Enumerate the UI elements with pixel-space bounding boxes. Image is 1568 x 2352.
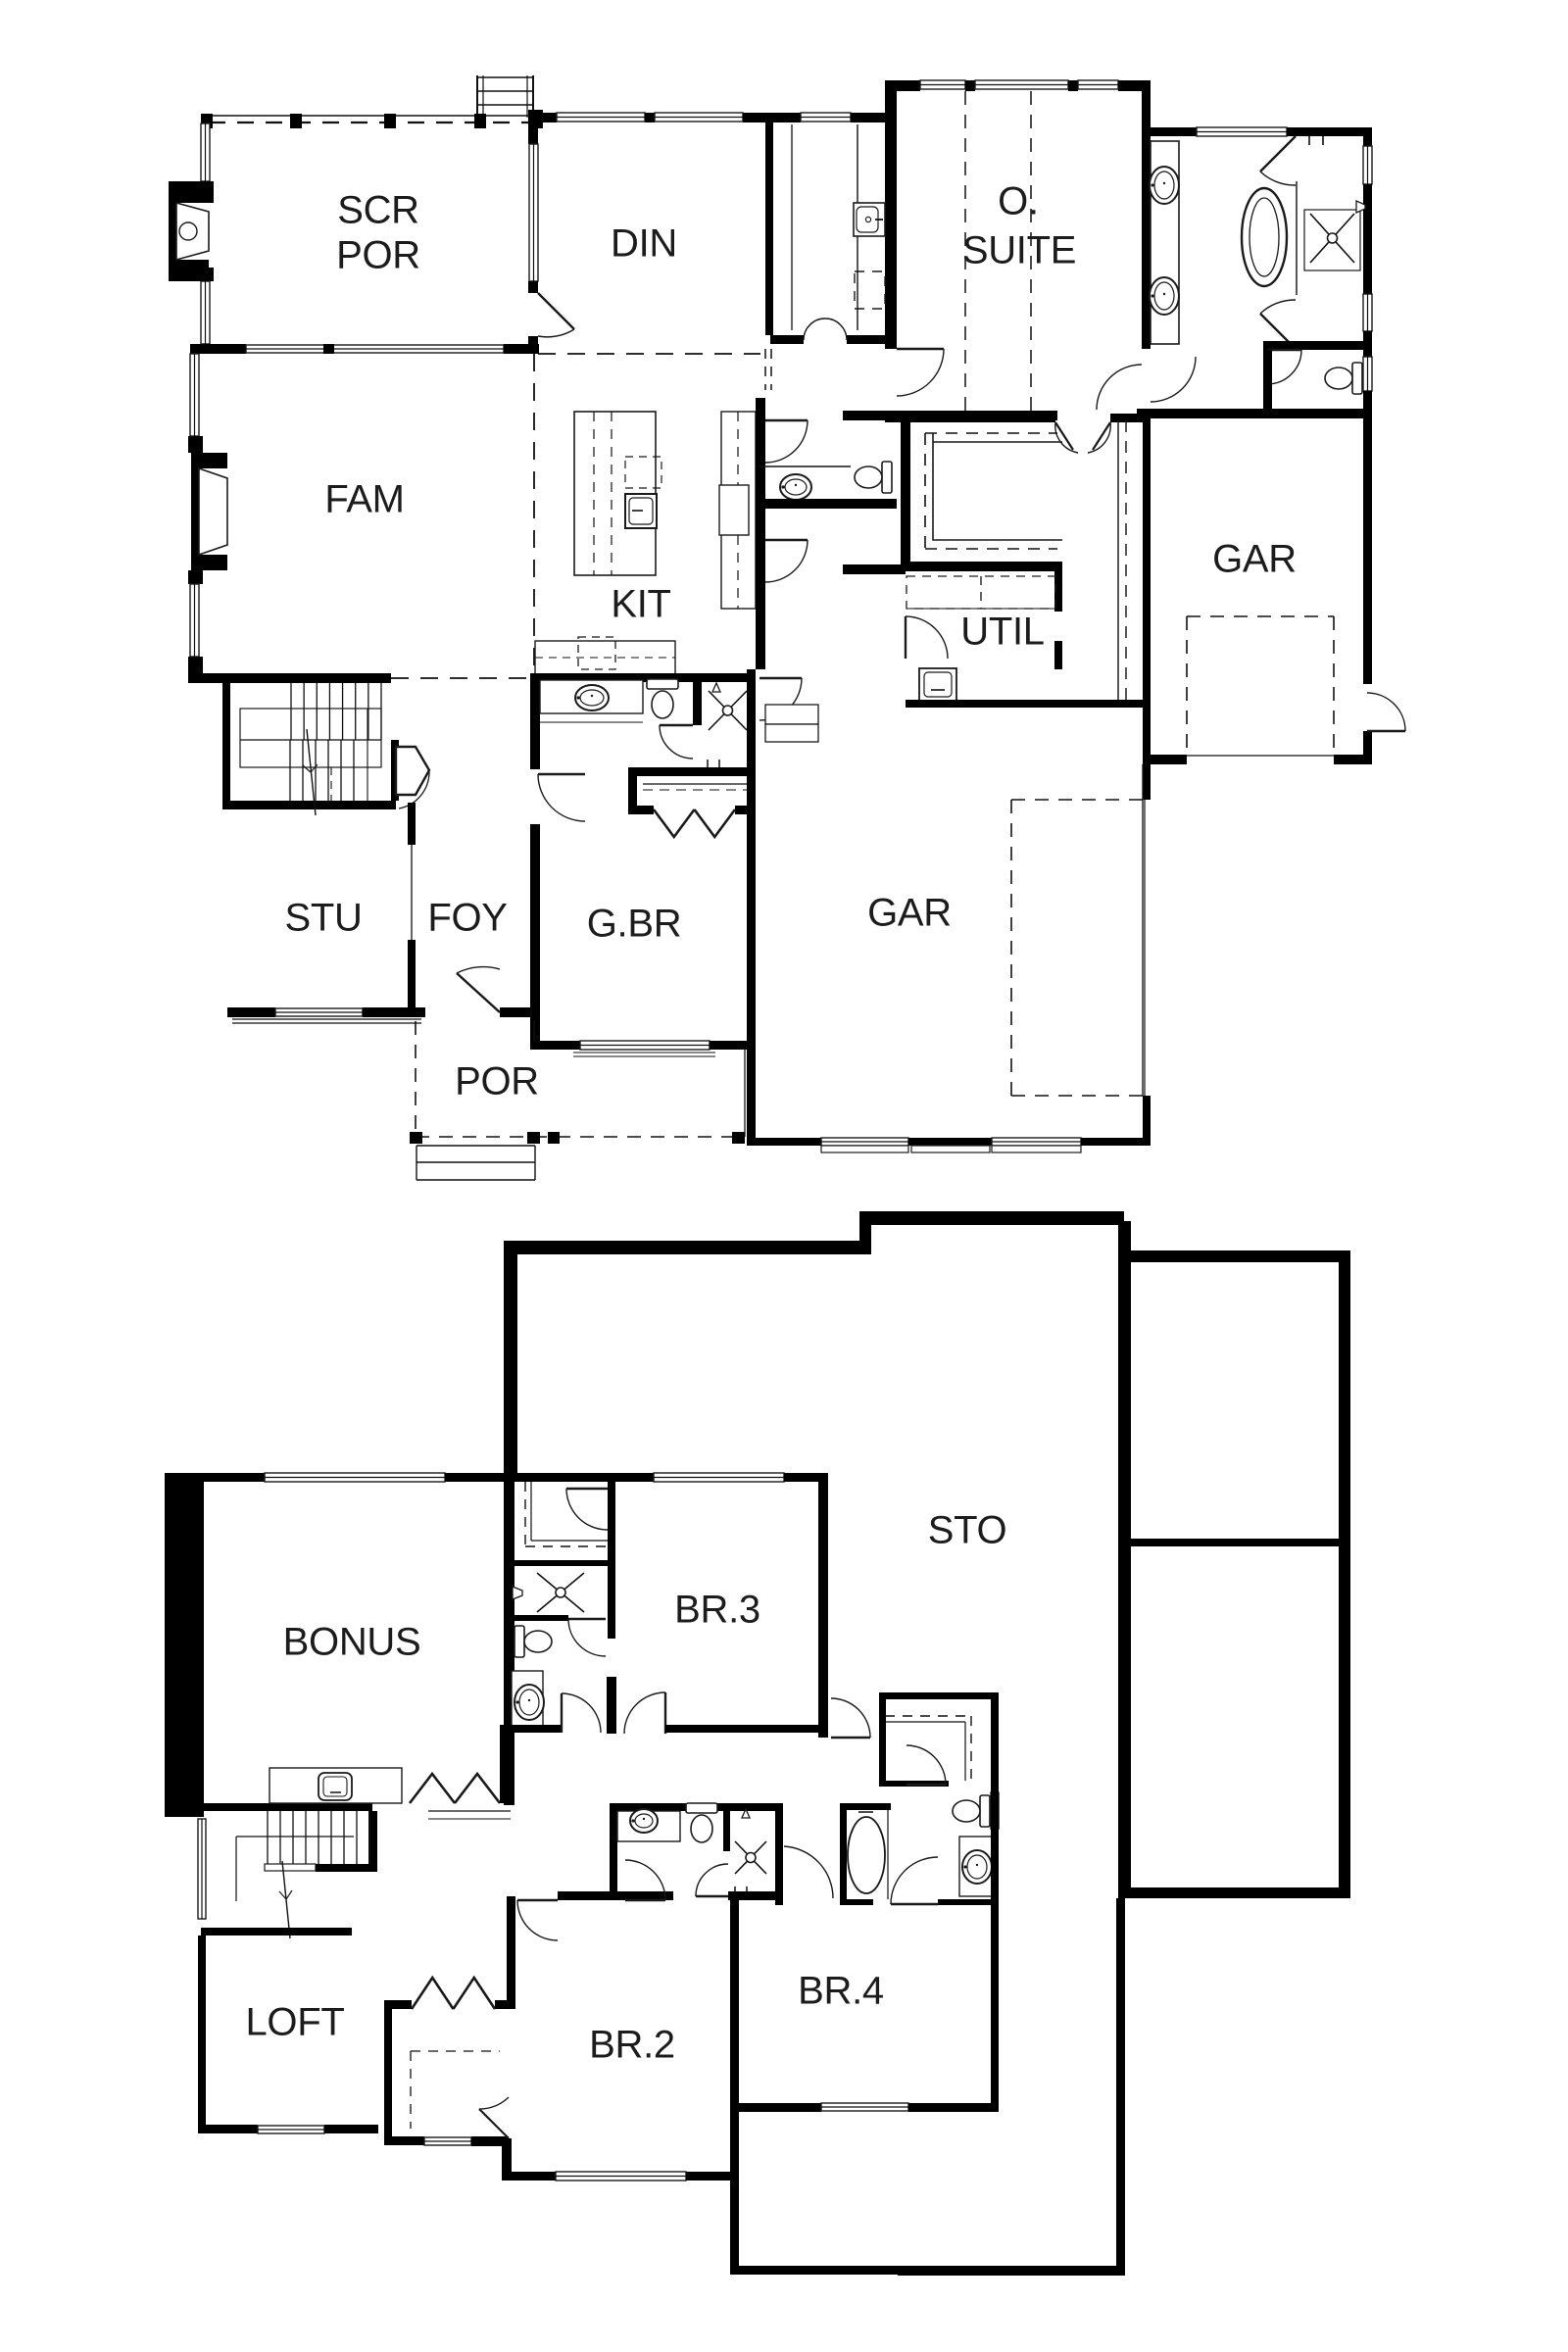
svg-text:FOY: FOY — [427, 897, 507, 940]
svg-text:STU: STU — [284, 897, 362, 940]
svg-text:POR: POR — [455, 1060, 539, 1103]
svg-text:DIN: DIN — [611, 222, 677, 266]
svg-text:FAM: FAM — [324, 478, 404, 521]
svg-text:G.BR: G.BR — [587, 903, 682, 946]
svg-text:BR.2: BR.2 — [589, 2024, 675, 2067]
svg-text:SCR: SCR — [337, 189, 419, 232]
svg-text:BR.3: BR.3 — [674, 1589, 760, 1632]
svg-text:GAR: GAR — [867, 892, 952, 935]
svg-text:STO: STO — [928, 1509, 1007, 1552]
svg-text:GAR: GAR — [1212, 538, 1297, 581]
svg-text:KIT: KIT — [611, 583, 670, 626]
svg-text:BONUS: BONUS — [283, 1621, 421, 1664]
svg-text:UTIL: UTIL — [960, 611, 1044, 654]
svg-text:POR: POR — [336, 234, 420, 277]
svg-text:SUITE: SUITE — [962, 229, 1076, 272]
svg-text:LOFT: LOFT — [245, 2001, 344, 2044]
svg-text:O.: O. — [998, 180, 1039, 223]
svg-text:BR.4: BR.4 — [798, 1970, 884, 2013]
